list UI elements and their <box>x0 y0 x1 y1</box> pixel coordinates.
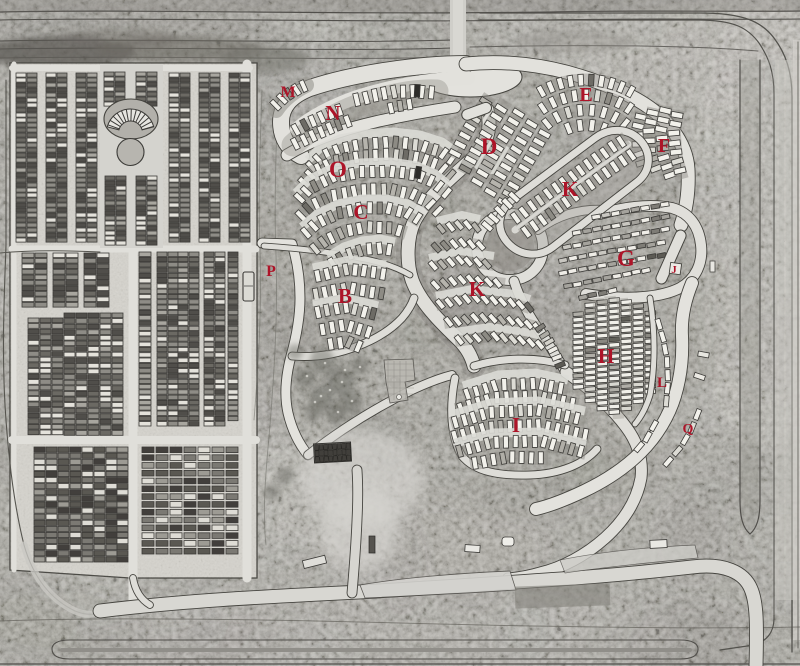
svg-text:N: N <box>325 101 340 125</box>
svg-text:G: G <box>617 246 635 271</box>
svg-text:C: C <box>353 200 368 224</box>
svg-text:F: F <box>658 135 670 157</box>
svg-text:K: K <box>562 177 579 201</box>
svg-text:L: L <box>657 375 667 391</box>
svg-text:D: D <box>481 134 498 159</box>
svg-text:H: H <box>598 344 614 368</box>
svg-text:E: E <box>579 84 592 106</box>
svg-text:J: J <box>671 264 677 276</box>
svg-text:K: K <box>469 277 486 301</box>
svg-text:P: P <box>266 263 276 280</box>
svg-text:B: B <box>338 284 352 308</box>
svg-text:I: I <box>512 413 520 437</box>
svg-text:O: O <box>329 157 347 182</box>
svg-text:Q: Q <box>683 422 694 437</box>
svg-text:M: M <box>280 84 295 101</box>
